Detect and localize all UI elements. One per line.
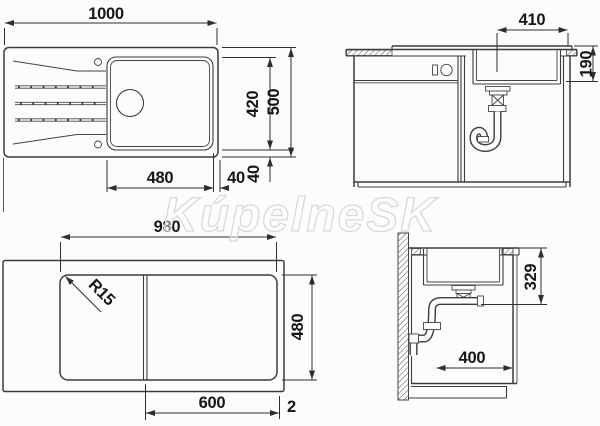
sink-technical-drawing: 1000 420 500 40 480	[0, 0, 600, 426]
dim-base-depth-label: 480	[289, 314, 307, 341]
dimension-board-width: 600 2	[146, 384, 297, 420]
dimension-base-depth: 480	[282, 275, 317, 380]
dim-bowl-width-label: 480	[147, 169, 174, 187]
corner-radius-label: R15	[85, 276, 119, 310]
bowl-section	[473, 50, 561, 85]
drawing-canvas: 1000 420 500 40 480	[0, 0, 600, 426]
dim-board-width-label: 600	[199, 394, 226, 412]
dimension-bowl-depth: 420	[222, 58, 294, 151]
dim-rim-bottom-label: 40	[245, 165, 263, 183]
wall-section	[398, 233, 409, 400]
counter-section	[409, 248, 520, 255]
dim-drain-height-label: 329	[522, 264, 540, 291]
counter-section-left	[347, 50, 393, 56]
drain-hole	[117, 90, 144, 117]
dim-drain-offset-label: 400	[459, 349, 486, 367]
dim-bowl-height-label: 190	[578, 51, 596, 78]
dimension-rim-right: 40	[196, 160, 245, 192]
handle-knob	[441, 64, 452, 75]
dimension-drain-offset: 400	[437, 349, 513, 368]
handle-detail	[433, 65, 438, 75]
dim-overall-depth-label: 500	[265, 89, 283, 116]
dim-cutout-width-label: 410	[519, 11, 546, 29]
front-view: 410 190	[346, 11, 598, 187]
countertop	[346, 46, 577, 56]
dimension-drain-height: 329	[481, 248, 547, 305]
corner-radius-callout: R15	[66, 276, 119, 312]
bowl-section-side	[424, 249, 504, 285]
drainboard-grooves	[13, 61, 106, 144]
dim-rim-right-label: 40	[227, 169, 245, 187]
siphon-side	[409, 286, 484, 357]
siphon-front	[474, 87, 511, 149]
dim-overall-width-label: 1000	[88, 5, 124, 23]
dimension-bowl-width: 480	[107, 153, 214, 192]
dim-bowl-depth-label: 420	[244, 91, 262, 118]
dimension-overall-width: 1000	[5, 5, 218, 45]
top-view: 1000 420 500 40 480	[4, 5, 297, 212]
dim-edge-offset-label: 2	[287, 398, 296, 416]
bottom-view: R15 980 480 600 2	[3, 218, 317, 420]
tap-hole-bottom	[95, 141, 102, 148]
bowl-outer	[107, 57, 213, 150]
counter-section-right	[567, 50, 577, 56]
bowl-inner	[111, 61, 210, 147]
tap-hole-top	[95, 59, 102, 66]
side-view: 329 400	[398, 233, 547, 400]
cabinet	[354, 56, 570, 187]
dimension-rim-bottom: 40	[245, 158, 270, 183]
watermark-text: KúpelneSK	[163, 189, 438, 242]
